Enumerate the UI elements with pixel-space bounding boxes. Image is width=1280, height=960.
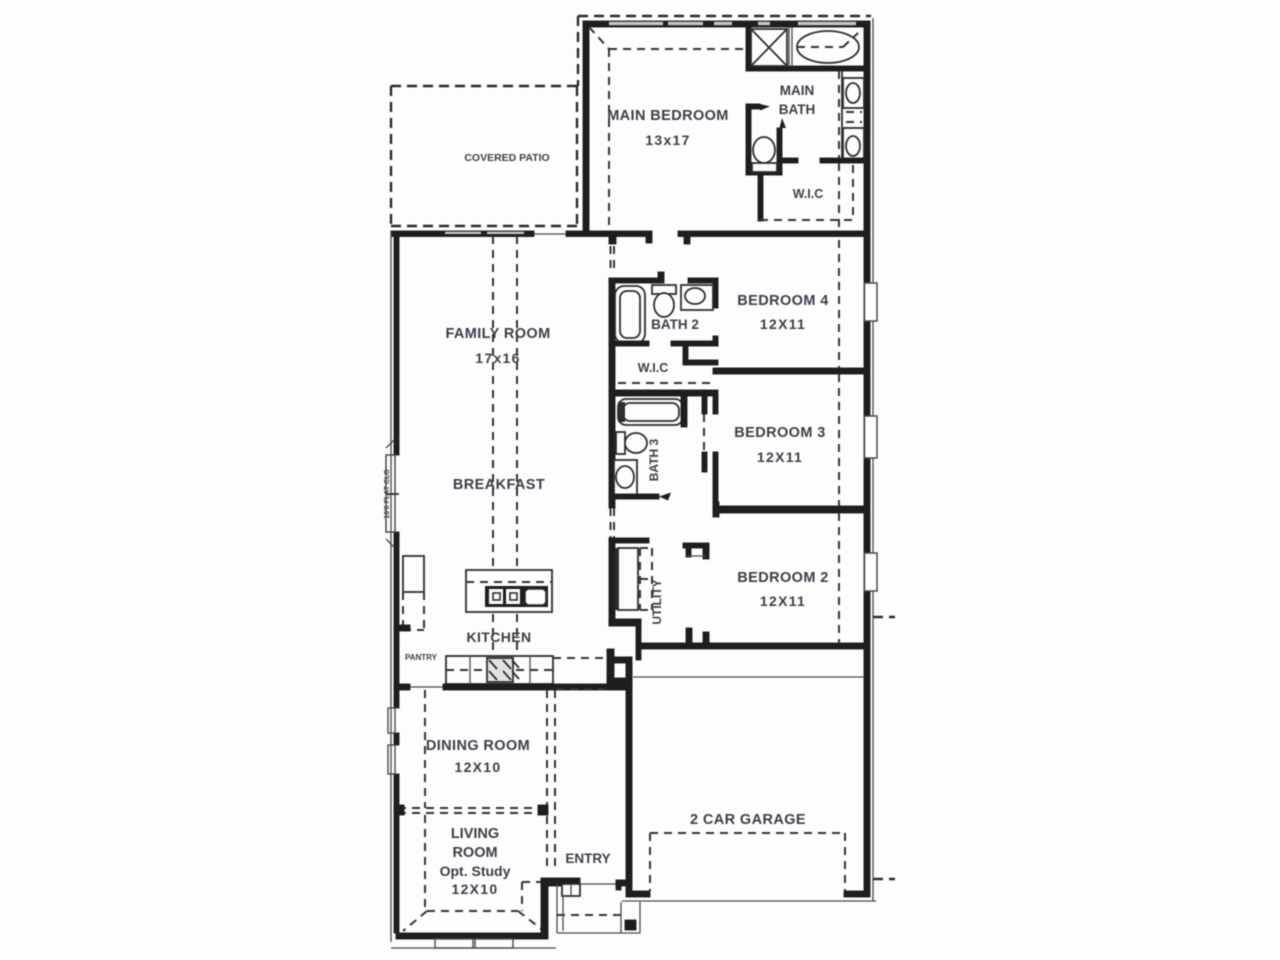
svg-text:COVERED PATIO: COVERED PATIO xyxy=(464,152,549,164)
svg-text:FAMILY ROOM: FAMILY ROOM xyxy=(445,326,550,342)
svg-text:12X10: 12X10 xyxy=(455,759,502,775)
svg-text:2 CAR GARAGE: 2 CAR GARAGE xyxy=(690,812,806,828)
svg-text:BEDROOM 4: BEDROOM 4 xyxy=(737,293,828,309)
svg-text:MAIN: MAIN xyxy=(780,83,815,98)
svg-text:KITCHEN: KITCHEN xyxy=(466,629,531,645)
svg-text:BATH 2: BATH 2 xyxy=(651,317,699,332)
svg-text:MAIN BEDROOM: MAIN BEDROOM xyxy=(607,108,729,124)
svg-text:W.I.C: W.I.C xyxy=(793,187,824,201)
svg-text:BEDROOM 2: BEDROOM 2 xyxy=(737,570,828,586)
svg-text:ROOM: ROOM xyxy=(452,845,497,861)
svg-text:UTILITY: UTILITY xyxy=(650,579,664,624)
svg-text:DINING ROOM: DINING ROOM xyxy=(426,738,530,754)
svg-text:LIVING: LIVING xyxy=(451,826,499,842)
svg-text:12X10: 12X10 xyxy=(452,881,499,897)
svg-text:12X11: 12X11 xyxy=(760,316,806,332)
svg-text:BREAKFAST: BREAKFAST xyxy=(453,477,545,493)
svg-text:W.I.C: W.I.C xyxy=(638,361,669,375)
svg-text:PANTRY: PANTRY xyxy=(405,653,438,662)
svg-text:16'0 FLAT CLG: 16'0 FLAT CLG xyxy=(384,469,391,519)
svg-text:17x16: 17x16 xyxy=(475,350,520,366)
svg-text:BATH: BATH xyxy=(779,102,816,117)
svg-text:12X11: 12X11 xyxy=(760,593,806,609)
svg-text:13x17: 13x17 xyxy=(645,132,690,148)
svg-text:12X11: 12X11 xyxy=(757,449,803,465)
svg-text:BATH 3: BATH 3 xyxy=(647,438,661,481)
svg-text:BEDROOM 3: BEDROOM 3 xyxy=(734,425,825,441)
svg-text:Opt. Study: Opt. Study xyxy=(440,863,511,879)
svg-text:ENTRY: ENTRY xyxy=(565,851,610,866)
